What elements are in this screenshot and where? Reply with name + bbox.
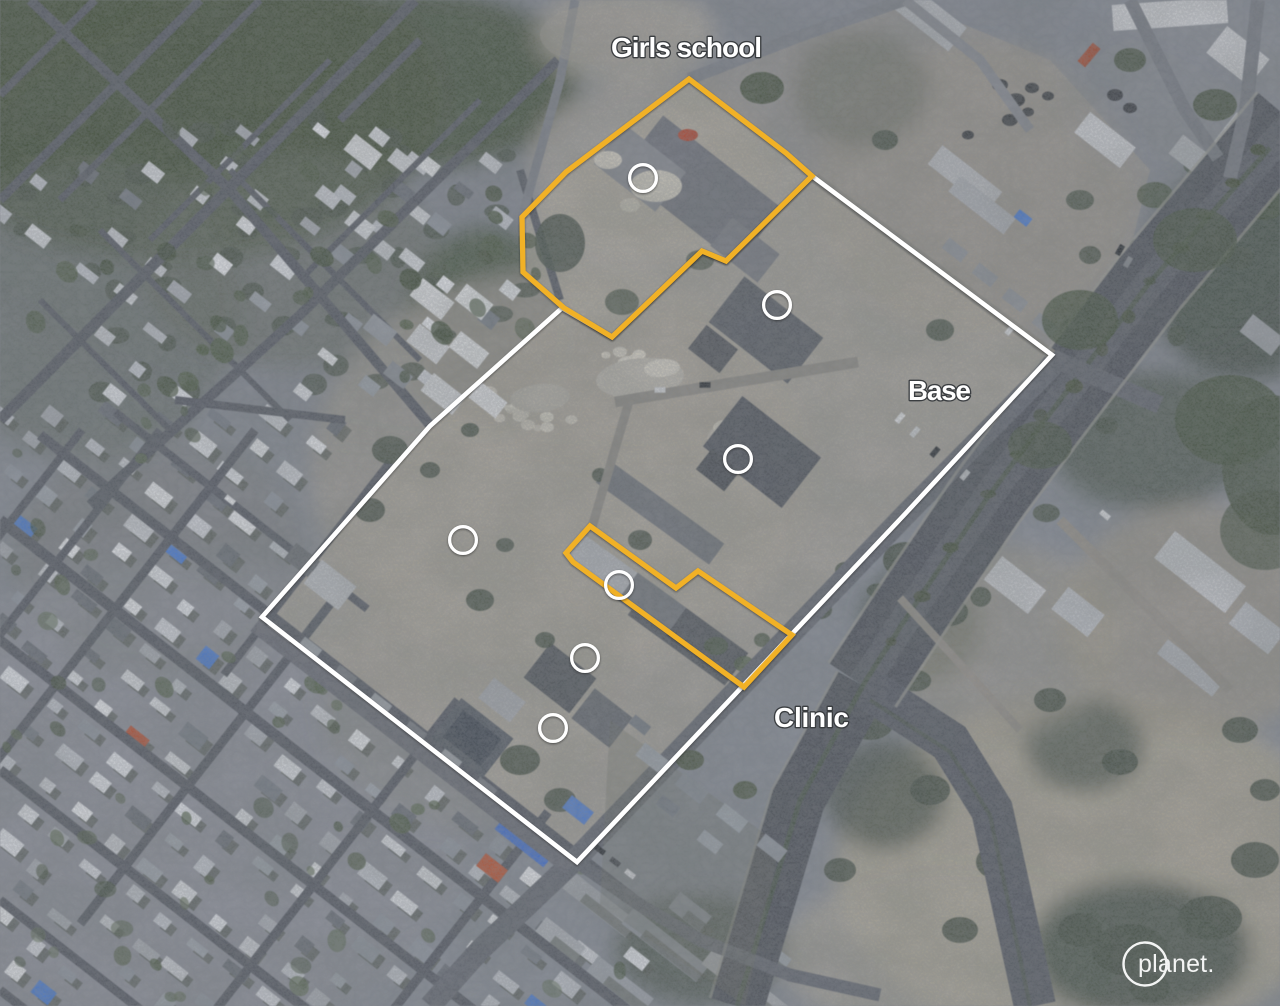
svg-text:Clinic: Clinic (774, 702, 849, 733)
svg-text:Base: Base (908, 375, 971, 406)
svg-text:Girls school: Girls school (611, 32, 762, 63)
svg-text:planet.: planet. (1138, 950, 1214, 978)
